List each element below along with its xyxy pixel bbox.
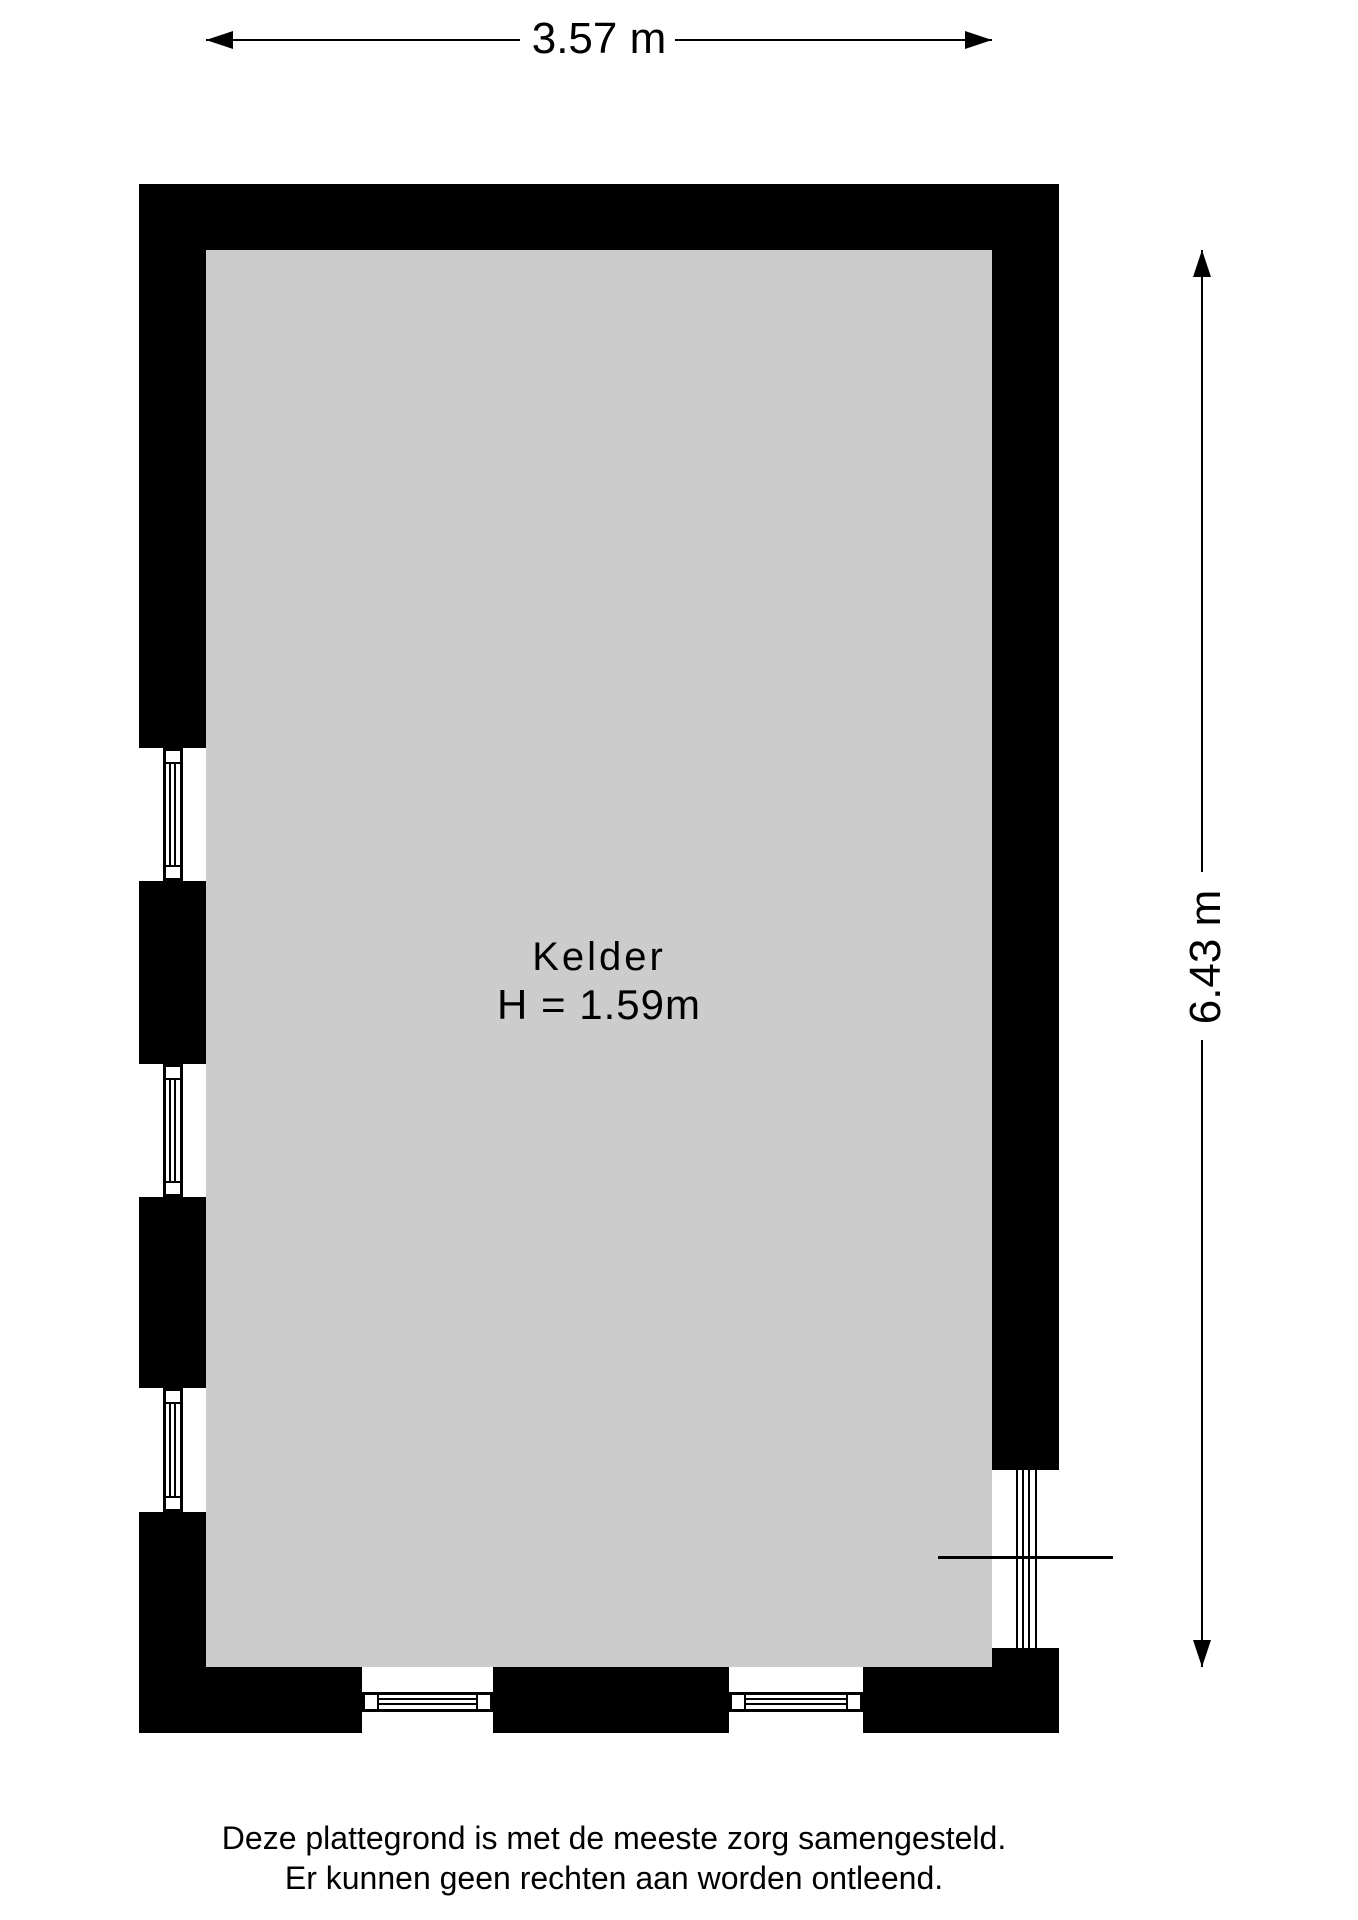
arrow-left-icon xyxy=(206,31,233,49)
room-name: Kelder xyxy=(399,933,799,981)
threshold-line xyxy=(938,1556,1113,1559)
window-icon-bottom-1 xyxy=(362,1692,493,1712)
window-frame-divider xyxy=(166,1181,180,1183)
room-label-block: Kelder H = 1.59m xyxy=(399,933,799,1029)
glass-pane-line xyxy=(169,1080,171,1181)
glass-pane-line xyxy=(746,1698,846,1700)
window-frame-divider xyxy=(166,865,180,867)
width-dimension-line-left xyxy=(206,39,520,41)
glass-pane-line xyxy=(379,1703,476,1705)
width-dimension-label: 3.57 m xyxy=(479,13,719,65)
disclaimer-line-1: Deze plattegrond is met de meeste zorg s… xyxy=(114,1818,1114,1858)
glass-pane-line xyxy=(174,1080,176,1181)
glass-pane-line xyxy=(379,1698,476,1700)
window-icon-left-3 xyxy=(163,1388,183,1512)
door-line xyxy=(1016,1470,1018,1648)
disclaimer: Deze plattegrond is met de meeste zorg s… xyxy=(114,1818,1114,1898)
arrow-down-icon xyxy=(1193,1640,1211,1667)
width-dimension-line-right xyxy=(675,39,992,41)
glass-pane-line xyxy=(169,1404,171,1496)
height-dimension-label: 6.43 m xyxy=(1180,837,1224,1077)
door-opening-icon xyxy=(1016,1470,1037,1648)
glass-pane-line xyxy=(174,1404,176,1496)
door-line xyxy=(1035,1470,1037,1648)
glass-pane-line xyxy=(746,1703,846,1705)
window-frame-divider xyxy=(476,1695,478,1709)
arrow-up-icon xyxy=(1193,250,1211,277)
disclaimer-line-2: Er kunnen geen rechten aan worden ontlee… xyxy=(114,1858,1114,1898)
height-dimension-line-bottom xyxy=(1201,1040,1203,1667)
height-dimension-line-top xyxy=(1201,250,1203,872)
window-icon-bottom-2 xyxy=(729,1692,863,1712)
glass-pane-line xyxy=(169,764,171,865)
window-icon-left-2 xyxy=(163,1064,183,1197)
room-height-label: H = 1.59m xyxy=(399,981,799,1029)
window-frame-divider xyxy=(166,1496,180,1498)
door-line xyxy=(1022,1470,1024,1648)
floorplan-canvas: 3.57 m xyxy=(0,0,1358,1920)
door-line xyxy=(1028,1470,1030,1648)
window-icon-left-1 xyxy=(163,748,183,881)
window-frame-divider xyxy=(846,1695,848,1709)
arrow-right-icon xyxy=(965,31,992,49)
glass-pane-line xyxy=(174,764,176,865)
